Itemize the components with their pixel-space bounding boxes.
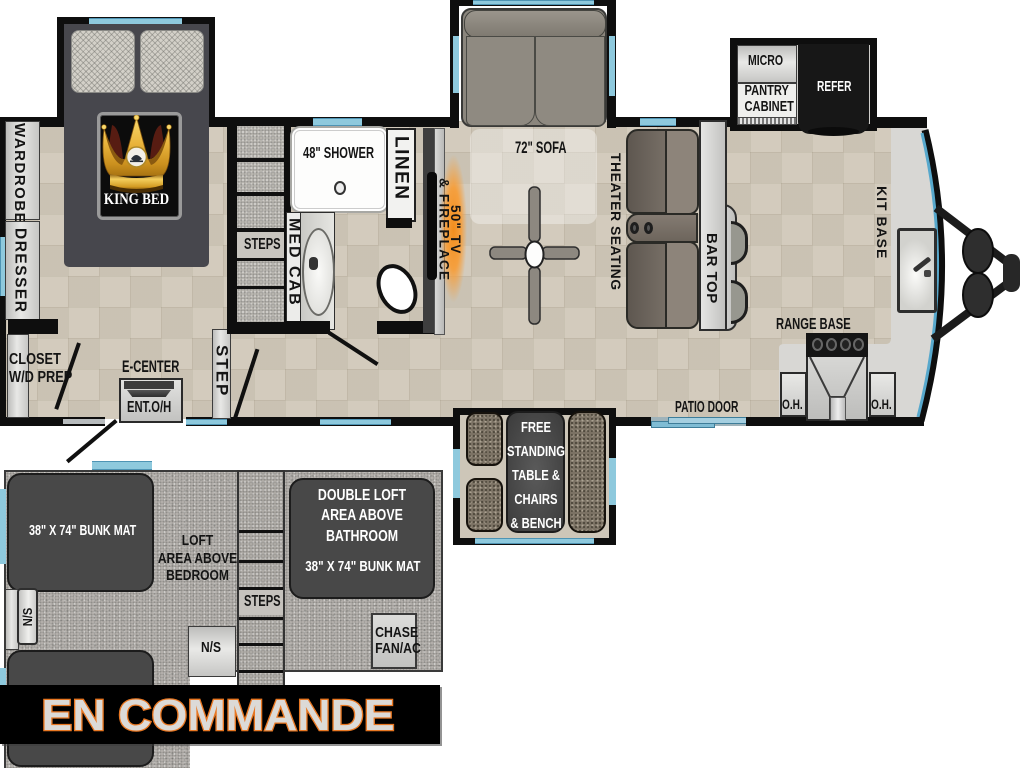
- svg-text:KING BED: KING BED: [104, 191, 169, 208]
- svg-text:EN COMMANDE: EN COMMANDE: [41, 690, 394, 740]
